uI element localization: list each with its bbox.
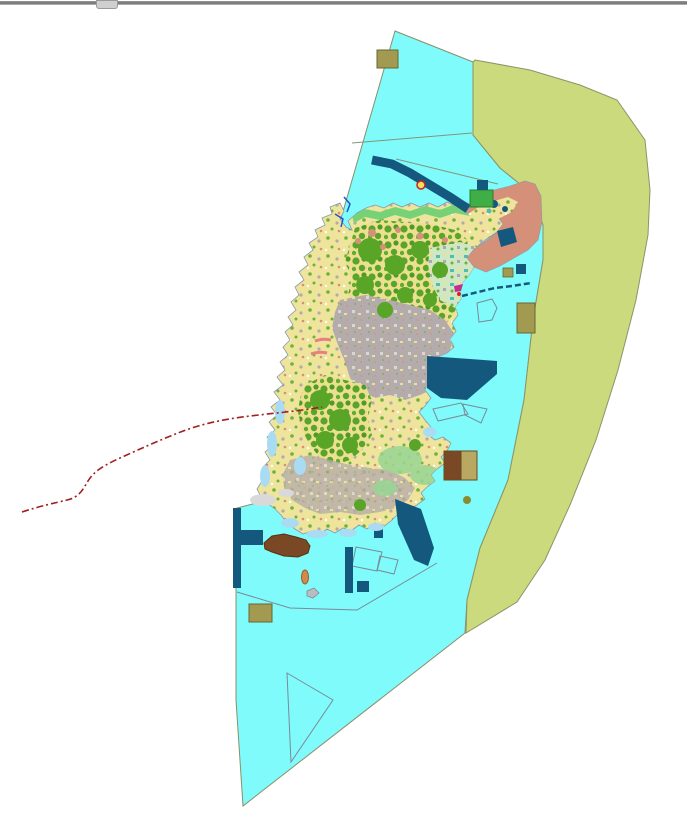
map-canvas[interactable]	[0, 0, 687, 821]
navy-square-south[interactable]	[357, 581, 369, 592]
boat-symbol[interactable]	[302, 570, 309, 584]
khaki-parcel-right[interactable]	[517, 303, 535, 333]
red-dot-marker	[457, 292, 461, 296]
splitter-handle[interactable]	[96, 0, 118, 9]
buoy-marker[interactable]	[417, 181, 425, 189]
khaki-parcel-top[interactable]	[377, 50, 398, 68]
khaki-parcel-bottom[interactable]	[249, 604, 272, 622]
map-viewport	[0, 0, 687, 821]
navy-bar-south[interactable]	[345, 547, 353, 593]
khaki-parcel-mid[interactable]	[503, 268, 513, 277]
peninsula-teal-blob	[487, 209, 492, 214]
olive-dot	[463, 496, 471, 504]
beach-stroke-2	[311, 352, 327, 354]
green-parcel-north[interactable]	[470, 190, 493, 207]
navy-square-mid[interactable]	[516, 264, 526, 274]
beach-stroke-1	[315, 339, 331, 341]
navy-parcel-north[interactable]	[477, 180, 488, 190]
top-splitter-bar	[0, 0, 687, 8]
brown-tan-parcel[interactable]	[444, 451, 477, 480]
